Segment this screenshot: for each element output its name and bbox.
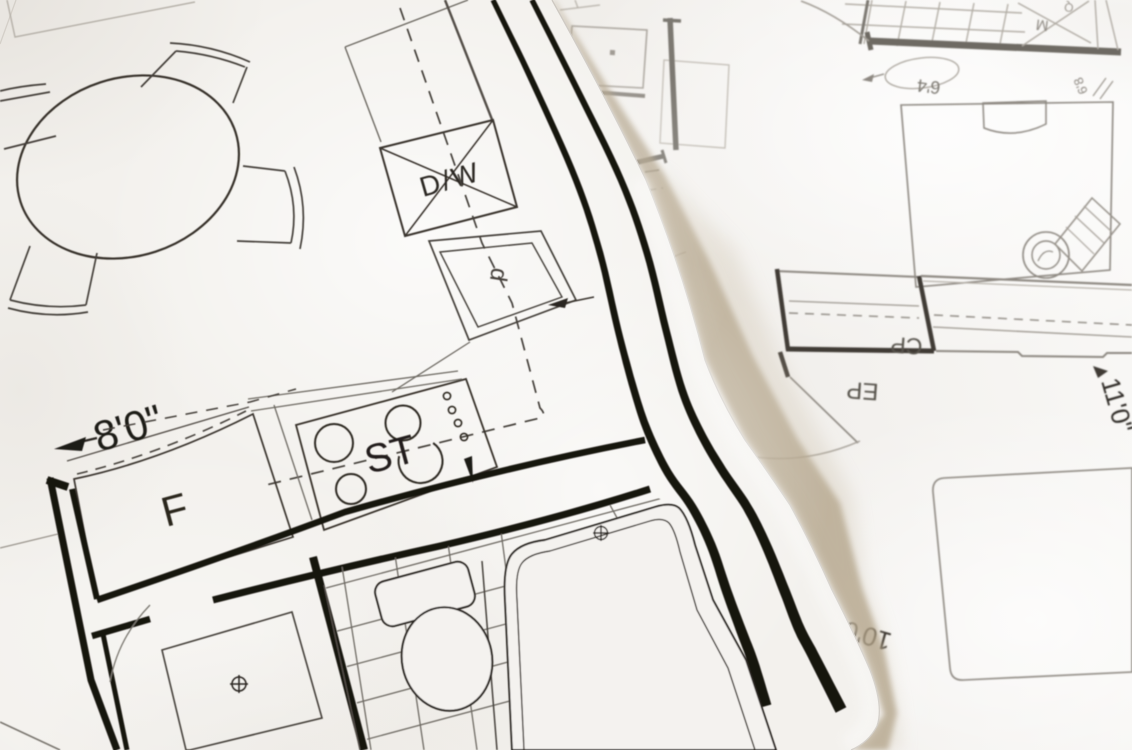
svg-text:Q: Q bbox=[1063, 0, 1074, 15]
svg-text:M: M bbox=[1035, 16, 1049, 34]
svg-text:EP: EP bbox=[846, 376, 880, 405]
svg-text:CP: CP bbox=[890, 332, 924, 360]
svg-text:6'4: 6'4 bbox=[916, 75, 942, 98]
